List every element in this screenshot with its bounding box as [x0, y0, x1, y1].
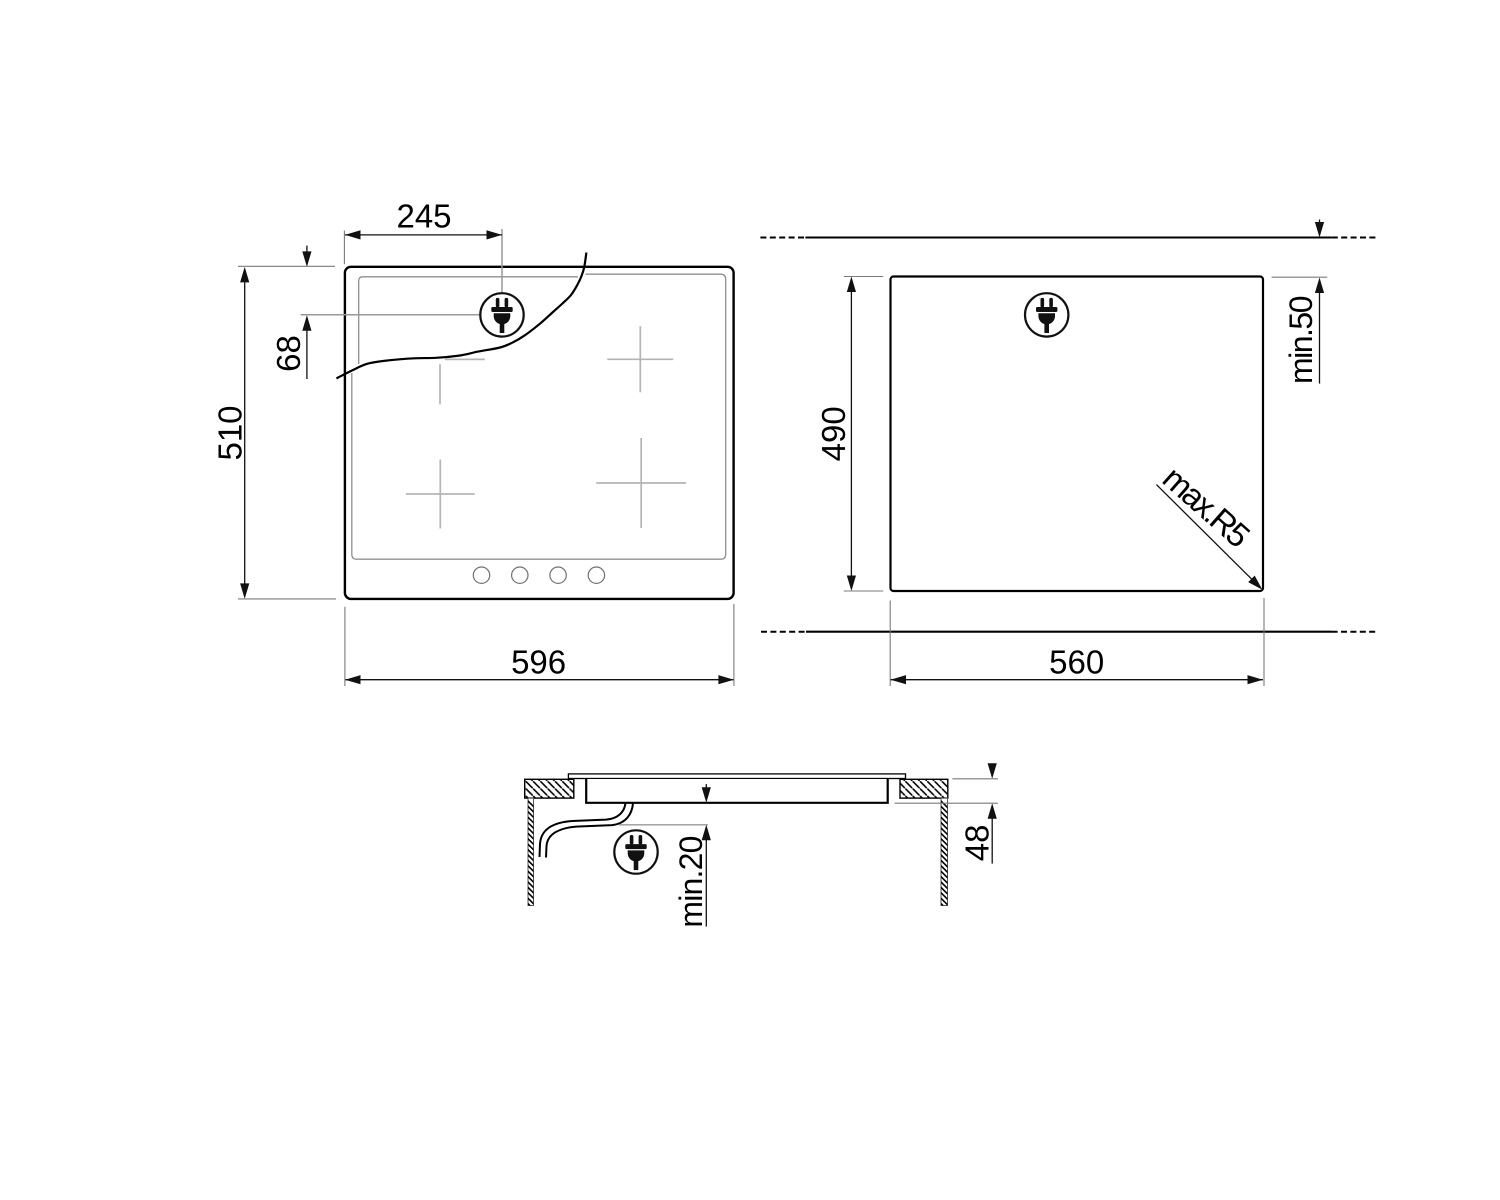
svg-text:48: 48	[959, 825, 996, 862]
svg-text:min.50: min.50	[1283, 296, 1319, 384]
svg-text:510: 510	[212, 405, 249, 460]
svg-text:68: 68	[270, 335, 307, 372]
svg-text:245: 245	[396, 198, 451, 235]
svg-text:596: 596	[511, 644, 566, 681]
svg-text:min.20: min.20	[673, 836, 709, 927]
svg-text:560: 560	[1049, 644, 1104, 681]
svg-text:490: 490	[815, 406, 852, 461]
